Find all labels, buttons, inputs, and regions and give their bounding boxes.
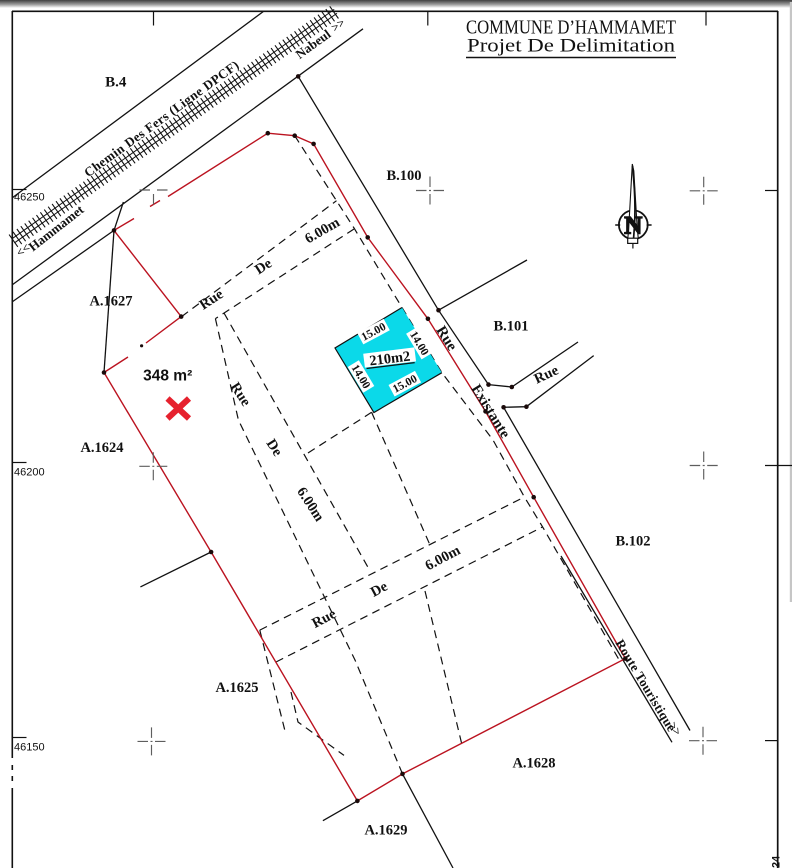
- svg-text:B.100: B.100: [386, 168, 421, 184]
- svg-text:24: 24: [771, 855, 783, 868]
- svg-text:46150: 46150: [14, 742, 45, 754]
- svg-text:COMMUNE D’HAMMAMET: COMMUNE D’HAMMAMET: [466, 18, 676, 39]
- svg-text:A.1624: A.1624: [80, 440, 123, 456]
- svg-text:A.1629: A.1629: [364, 823, 407, 839]
- svg-text:B.102: B.102: [615, 534, 650, 550]
- svg-text:A.1628: A.1628: [512, 756, 555, 772]
- svg-text:A.1627: A.1627: [89, 294, 132, 310]
- svg-text:B.4: B.4: [105, 75, 127, 91]
- svg-text:N: N: [624, 213, 642, 240]
- svg-text:A.1625: A.1625: [215, 680, 258, 696]
- svg-text:348 m²: 348 m²: [143, 368, 192, 385]
- svg-text:46200: 46200: [14, 467, 45, 479]
- svg-text:Projet De Delimitation: Projet De Delimitation: [467, 37, 675, 57]
- svg-text:B.101: B.101: [493, 319, 528, 335]
